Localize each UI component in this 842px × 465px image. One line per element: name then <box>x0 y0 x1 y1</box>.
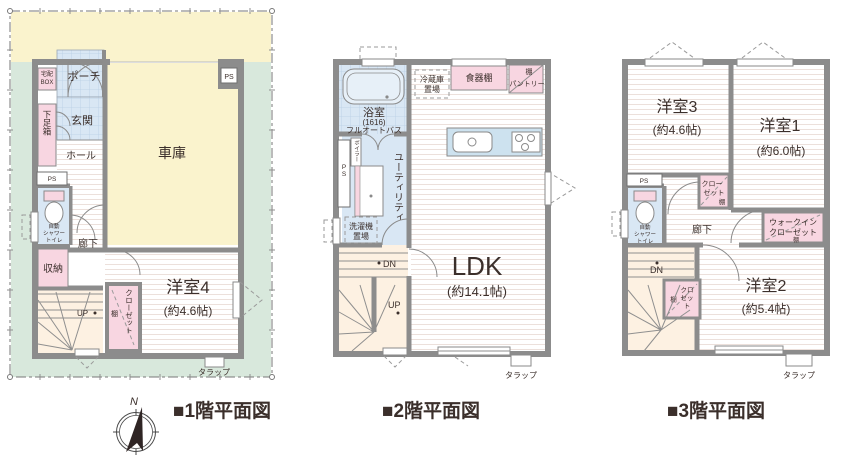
cupboard-label: 食器棚 <box>465 72 492 83</box>
storage-label: 収納 <box>43 262 63 275</box>
up-label-2f: UP <box>388 300 401 310</box>
window-swing-2f <box>384 356 406 367</box>
ldk-size-label: (約14.1帖) <box>447 284 507 299</box>
bath-label: 浴室 <box>363 105 385 119</box>
bath-drain <box>385 95 388 98</box>
caption-floor1: ■1階平面図 <box>173 400 271 422</box>
closet3f-b-label3: ト <box>684 303 691 310</box>
stair-dot <box>94 312 97 315</box>
room4-label: 洋室4 <box>166 278 209 297</box>
survey-point <box>270 9 275 14</box>
toilet-tank-1f <box>44 191 64 201</box>
dn-dot <box>378 262 381 265</box>
ps-garage-label: PS <box>224 74 234 81</box>
floorplan-canvas: PS 宅配 BOX 下足箱 収納 クローゼット 棚 PS 自動 シャワー トイレ… <box>0 0 842 465</box>
closet3f-a-label: クロー <box>702 180 723 188</box>
shoe-cabinet-label: 下足箱 <box>42 110 52 136</box>
north-label: N <box>130 396 138 408</box>
hall-label: ホール <box>66 150 96 162</box>
room1-label: 洋室1 <box>760 117 801 135</box>
corridor-3f-label: 廊下 <box>692 223 712 236</box>
ldk-label: LDK <box>452 251 503 281</box>
closet3f-b-label2: ゼッ <box>681 293 694 302</box>
tarappu-2f-label: タラップ <box>505 371 537 380</box>
tarappu-1f-label: タラップ <box>198 368 230 377</box>
pantry-shelf-label: 棚 <box>526 67 533 76</box>
toilet-1f-label: 自動 <box>48 222 60 230</box>
window-stairs2-south <box>383 348 407 355</box>
tarappu-2f <box>511 355 531 366</box>
ldk-door-swing-east <box>548 172 575 205</box>
washer-label: 洗濯機 <box>349 221 373 231</box>
floor2-plan: 浴室 (1616) フルオートバス 冷蔵庫 置場 食器棚 棚 パントリー ボイラ… <box>324 47 575 380</box>
closet3f-b-label: クロ <box>681 286 694 294</box>
ps-2f-label: PS <box>341 164 348 178</box>
tarappu-3f-label: タラップ <box>783 371 815 380</box>
toilet-1f-label: シャワー <box>43 230 65 237</box>
fridge-label: 冷蔵庫 <box>420 74 444 84</box>
corridor-1f-label: 廊下 <box>78 237 98 250</box>
entrance-label: 玄関 <box>71 113 93 127</box>
porch-label: ポーチ <box>68 70 101 83</box>
floor1-plan: PS 宅配 BOX 下足箱 収納 クローゼット 棚 PS 自動 シャワー トイレ… <box>7 8 275 380</box>
closet1f-label: クローゼット <box>124 289 133 334</box>
pantry-label: パントリー <box>509 80 544 88</box>
floorplan-sheet: PS 宅配 BOX 下足箱 収納 クローゼット 棚 PS 自動 シャワー トイレ… <box>0 0 842 465</box>
kitchen-sink <box>453 132 492 152</box>
up-label-1f: UP <box>77 309 88 318</box>
window-toilet3-west <box>621 210 628 238</box>
stove <box>512 132 540 152</box>
compass-icon: N <box>113 396 159 455</box>
tarappu-3f <box>786 354 812 366</box>
dn-label-3f: DN <box>650 265 663 275</box>
closet3f-a-label2: ゼット <box>704 188 725 197</box>
survey-point <box>8 9 13 14</box>
window-ldk-north <box>452 59 506 66</box>
caption-floor2: ■2階平面図 <box>382 400 480 422</box>
yard-north <box>11 12 271 62</box>
boiler-label: ボイラー <box>353 140 360 162</box>
wic-shelf: 棚 <box>793 236 799 244</box>
bath-window-outside <box>360 47 396 59</box>
room3-size-label: (約4.6帖) <box>653 122 702 137</box>
ps-3f-label: PS <box>640 178 649 185</box>
window-room1-north <box>737 59 793 66</box>
window-toilet-west <box>31 212 38 242</box>
wic-label2: クローゼット <box>769 227 817 237</box>
caption-floor3: ■3階平面図 <box>667 400 765 422</box>
room3-label: 洋室3 <box>657 98 698 116</box>
closet1f-shelf-label: 棚 <box>111 309 119 318</box>
toilet-3f-label: 自動 <box>639 223 651 231</box>
room4-size-label: (約4.6帖) <box>164 303 213 318</box>
tarappu-dash-2f <box>455 357 468 366</box>
room1-size-label: (約6.0帖) <box>757 143 806 158</box>
ps-1f-label: PS <box>48 176 57 183</box>
toilet-3f-label: シャワー <box>634 231 656 238</box>
ldk-door-east <box>545 172 551 205</box>
toilet-bowl-3f <box>636 202 654 224</box>
window-room4-east <box>233 282 240 318</box>
window-bath-north <box>362 59 394 66</box>
tarappu-1f <box>205 357 224 367</box>
floor3-plan: PS 自動 シャワー トイレ クロー ゼット 棚 ウォークイン クローゼット 棚… <box>612 42 827 380</box>
toilet-bowl-1f <box>45 202 63 224</box>
delivery-box-label: BOX <box>41 80 54 86</box>
toilet-3f-label: トイレ <box>637 239 654 245</box>
window-swing-room3 <box>650 42 694 58</box>
window-outside-dash-2f <box>324 220 332 242</box>
washbasin-drain <box>370 195 373 198</box>
toilet-tank-3f <box>634 191 656 201</box>
utility-label: ユーティリティ <box>392 152 404 222</box>
closet3f-a-shelf: 棚 <box>719 197 726 206</box>
window-room3-north <box>645 59 703 66</box>
wic-label: ウォークイン <box>769 218 817 227</box>
room2-label: 洋室2 <box>746 277 787 295</box>
toilet-1f-label: トイレ <box>46 238 63 244</box>
window-stairs-south <box>75 349 99 356</box>
window-swing-room1 <box>742 42 785 58</box>
delivery-box-label: 宅配 <box>41 70 53 78</box>
garage-label: 車庫 <box>158 145 186 161</box>
washer-label2: 置場 <box>353 231 369 241</box>
washbasin-edge <box>355 166 360 216</box>
window-utility-west <box>333 218 340 244</box>
up-dot <box>397 312 400 315</box>
fridge-label2: 置場 <box>424 84 440 94</box>
room2-size-label: (約5.4帖) <box>742 301 791 316</box>
window-outside-dash-3f <box>612 212 620 236</box>
dn-label-2f: DN <box>383 259 396 269</box>
survey-point <box>270 375 275 380</box>
survey-point <box>8 375 13 380</box>
room2-floor <box>697 245 824 351</box>
ldk-floor <box>411 65 545 352</box>
